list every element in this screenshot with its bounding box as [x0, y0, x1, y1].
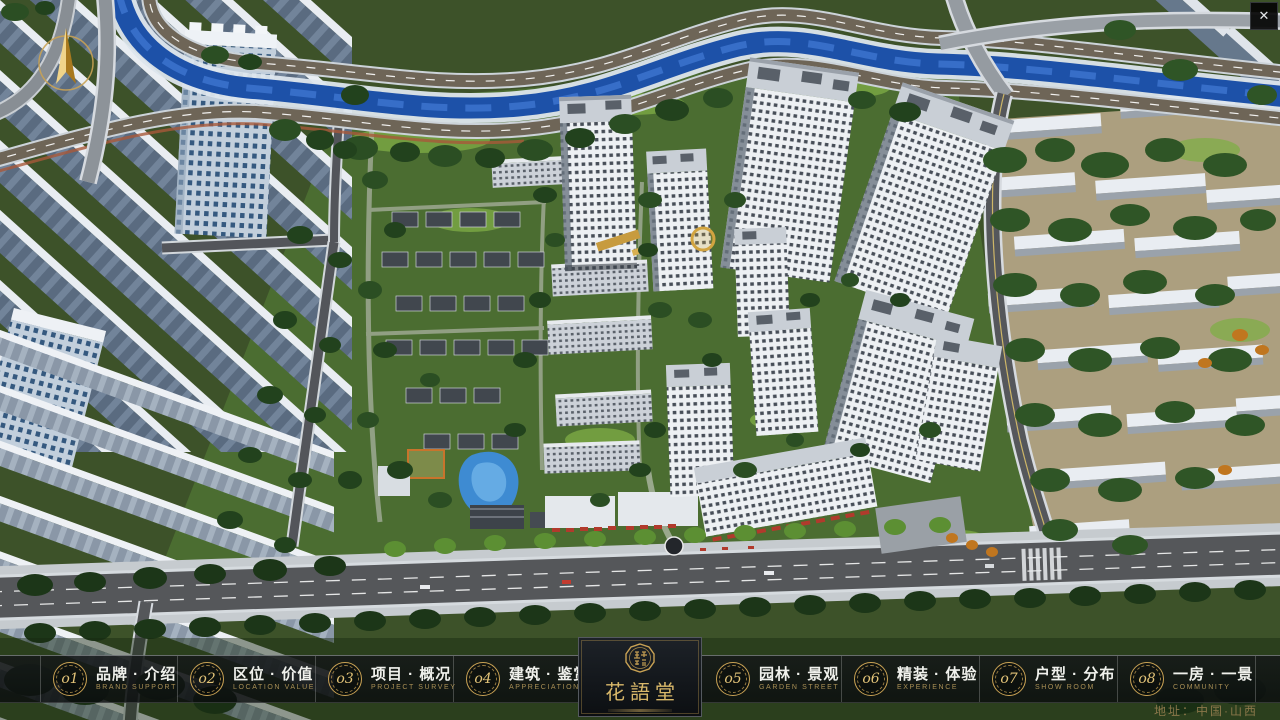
project-logo-panel[interactable]: 花語堂	[578, 637, 702, 717]
nav-sublabel: GARDEN STREET	[759, 684, 839, 691]
sales-presentation-app: { "window": { "close": "✕" }, "nav": { "…	[0, 0, 1280, 720]
nav-badge-02: o2	[190, 662, 224, 696]
close-button[interactable]: ✕	[1250, 2, 1278, 30]
nav-badge-06: o6	[854, 662, 888, 696]
nav-item-interior[interactable]: o6 精装 · 体验 EXPERIENCE	[842, 656, 980, 702]
nav-item-location[interactable]: o2 区位 · 价值 LOCATION VALUE	[178, 656, 316, 702]
nav-badge-01: o1	[53, 662, 87, 696]
nav-label: 品牌 · 介绍	[96, 667, 177, 683]
nav-sublabel: EXPERIENCE	[897, 684, 977, 691]
project-logo-title: 花語堂	[600, 676, 680, 705]
nav-badge-05: o5	[716, 662, 750, 696]
nav-sublabel: PROJECT SURVEY	[371, 684, 457, 691]
nav-sublabel: SHOW ROOM	[1035, 684, 1115, 691]
nav-badge-08: o8	[1130, 662, 1164, 696]
nav-group-right: o5 园林 · 景观 GARDEN STREET o6 精装 · 体验 EXPE…	[704, 656, 1256, 702]
nav-label: 精装 · 体验	[897, 667, 977, 683]
nav-group-left: o1 品牌 · 介绍 BRAND SUPPORT o2 区位 · 价值 LOCA…	[40, 656, 578, 702]
logo-tagline	[608, 709, 672, 712]
nav-item-project[interactable]: o3 项目 · 概况 PROJECT SURVEY	[316, 656, 454, 702]
project-address: 地址：中国·山西	[1154, 702, 1258, 719]
nav-label: 户型 · 分布	[1035, 667, 1115, 683]
nav-label: 区位 · 价值	[233, 667, 315, 683]
nav-badge-04: o4	[466, 662, 500, 696]
nav-sublabel: COMMUNITY	[1173, 684, 1253, 691]
masterplan-viewport[interactable]	[0, 0, 1280, 720]
nav-item-garden[interactable]: o5 园林 · 景观 GARDEN STREET	[704, 656, 842, 702]
nav-item-brand[interactable]: o1 品牌 · 介绍 BRAND SUPPORT	[40, 656, 178, 702]
seal-icon	[625, 643, 655, 673]
nav-badge-07: o7	[992, 662, 1026, 696]
nav-sublabel: BRAND SUPPORT	[96, 684, 177, 691]
nav-item-room-view[interactable]: o8 一房 · 一景 COMMUNITY	[1118, 656, 1256, 702]
nav-badge-03: o3	[328, 662, 362, 696]
nav-label: 园林 · 景观	[759, 667, 839, 683]
masterplan-render	[0, 0, 1280, 720]
nav-label: 一房 · 一景	[1173, 667, 1253, 683]
nav-item-architecture[interactable]: o4 建筑 · 鉴赏 APPRECIATION	[454, 656, 578, 702]
close-icon: ✕	[1259, 8, 1270, 24]
nav-item-floorplan[interactable]: o7 户型 · 分布 SHOW ROOM	[980, 656, 1118, 702]
nav-label: 项目 · 概况	[371, 667, 457, 683]
nav-sublabel: LOCATION VALUE	[233, 684, 315, 691]
